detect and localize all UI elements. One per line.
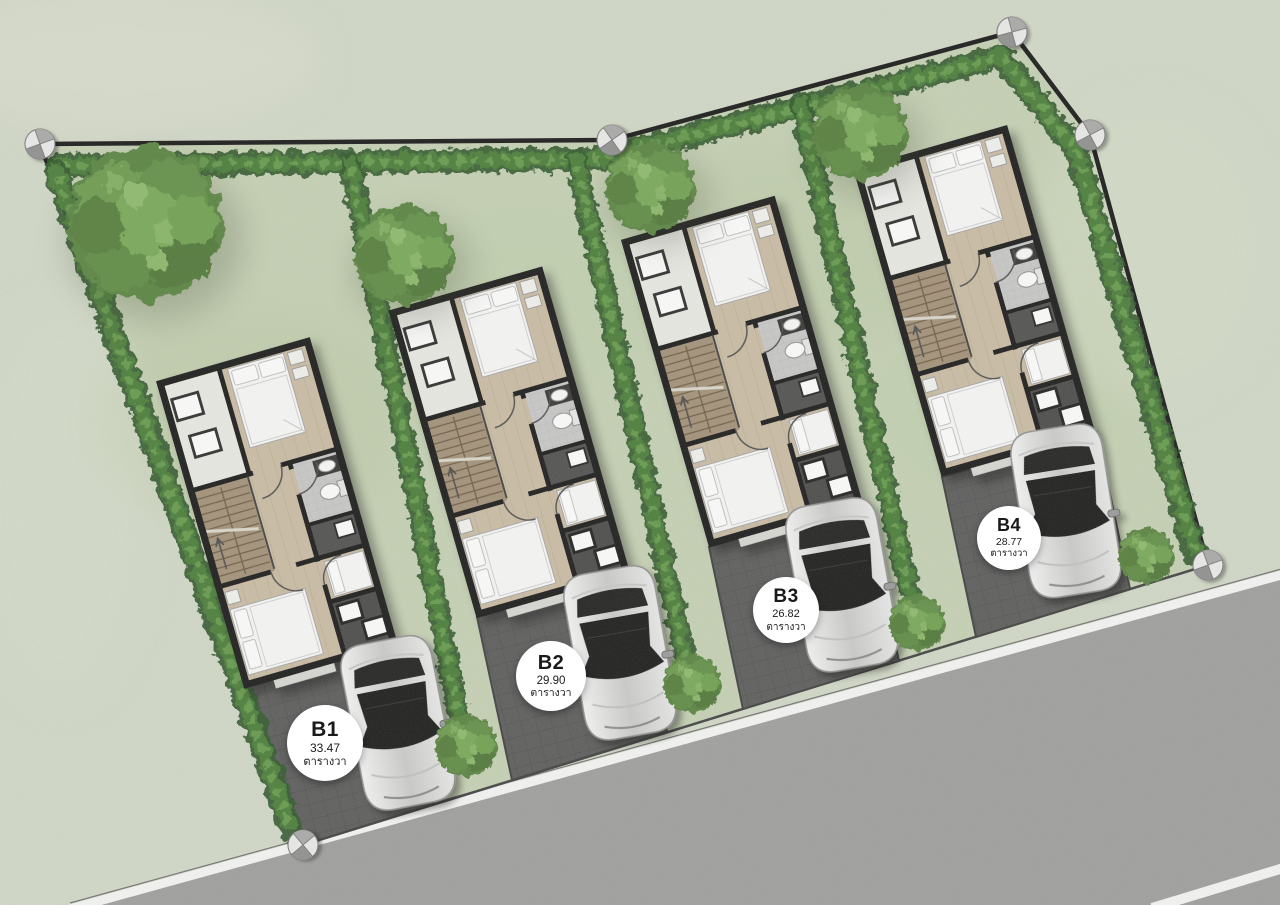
- plot-id: B1: [311, 718, 339, 741]
- plot-area-unit: ตารางวา: [990, 549, 1027, 559]
- plot-area: 33.47: [310, 741, 340, 756]
- plot-id: B4: [997, 516, 1021, 536]
- plot-label-b1: B1 33.47 ตารางวา: [287, 705, 363, 781]
- plot-label-b3: B3 26.82 ตารางวา: [753, 577, 819, 643]
- site-plan-canvas: B1 33.47 ตารางวา B2 29.90 ตารางวา B3 26.…: [0, 0, 1280, 905]
- plot-id: B2: [538, 652, 565, 674]
- plot-area: 26.82: [772, 608, 800, 622]
- plot-area: 29.90: [537, 674, 566, 688]
- plot-id: B3: [773, 587, 798, 608]
- site-plan-illustration: [0, 0, 1280, 905]
- plot-label-b4: B4 28.77 ตารางวา: [977, 506, 1041, 570]
- plot-area-unit: ตารางวา: [303, 756, 346, 768]
- plot-area-unit: ตารางวา: [766, 622, 805, 633]
- plot-area-unit: ตารางวา: [530, 688, 571, 700]
- plot-label-b2: B2 29.90 ตารางวา: [516, 641, 586, 711]
- texture-grain-overlay: [0, 0, 1280, 905]
